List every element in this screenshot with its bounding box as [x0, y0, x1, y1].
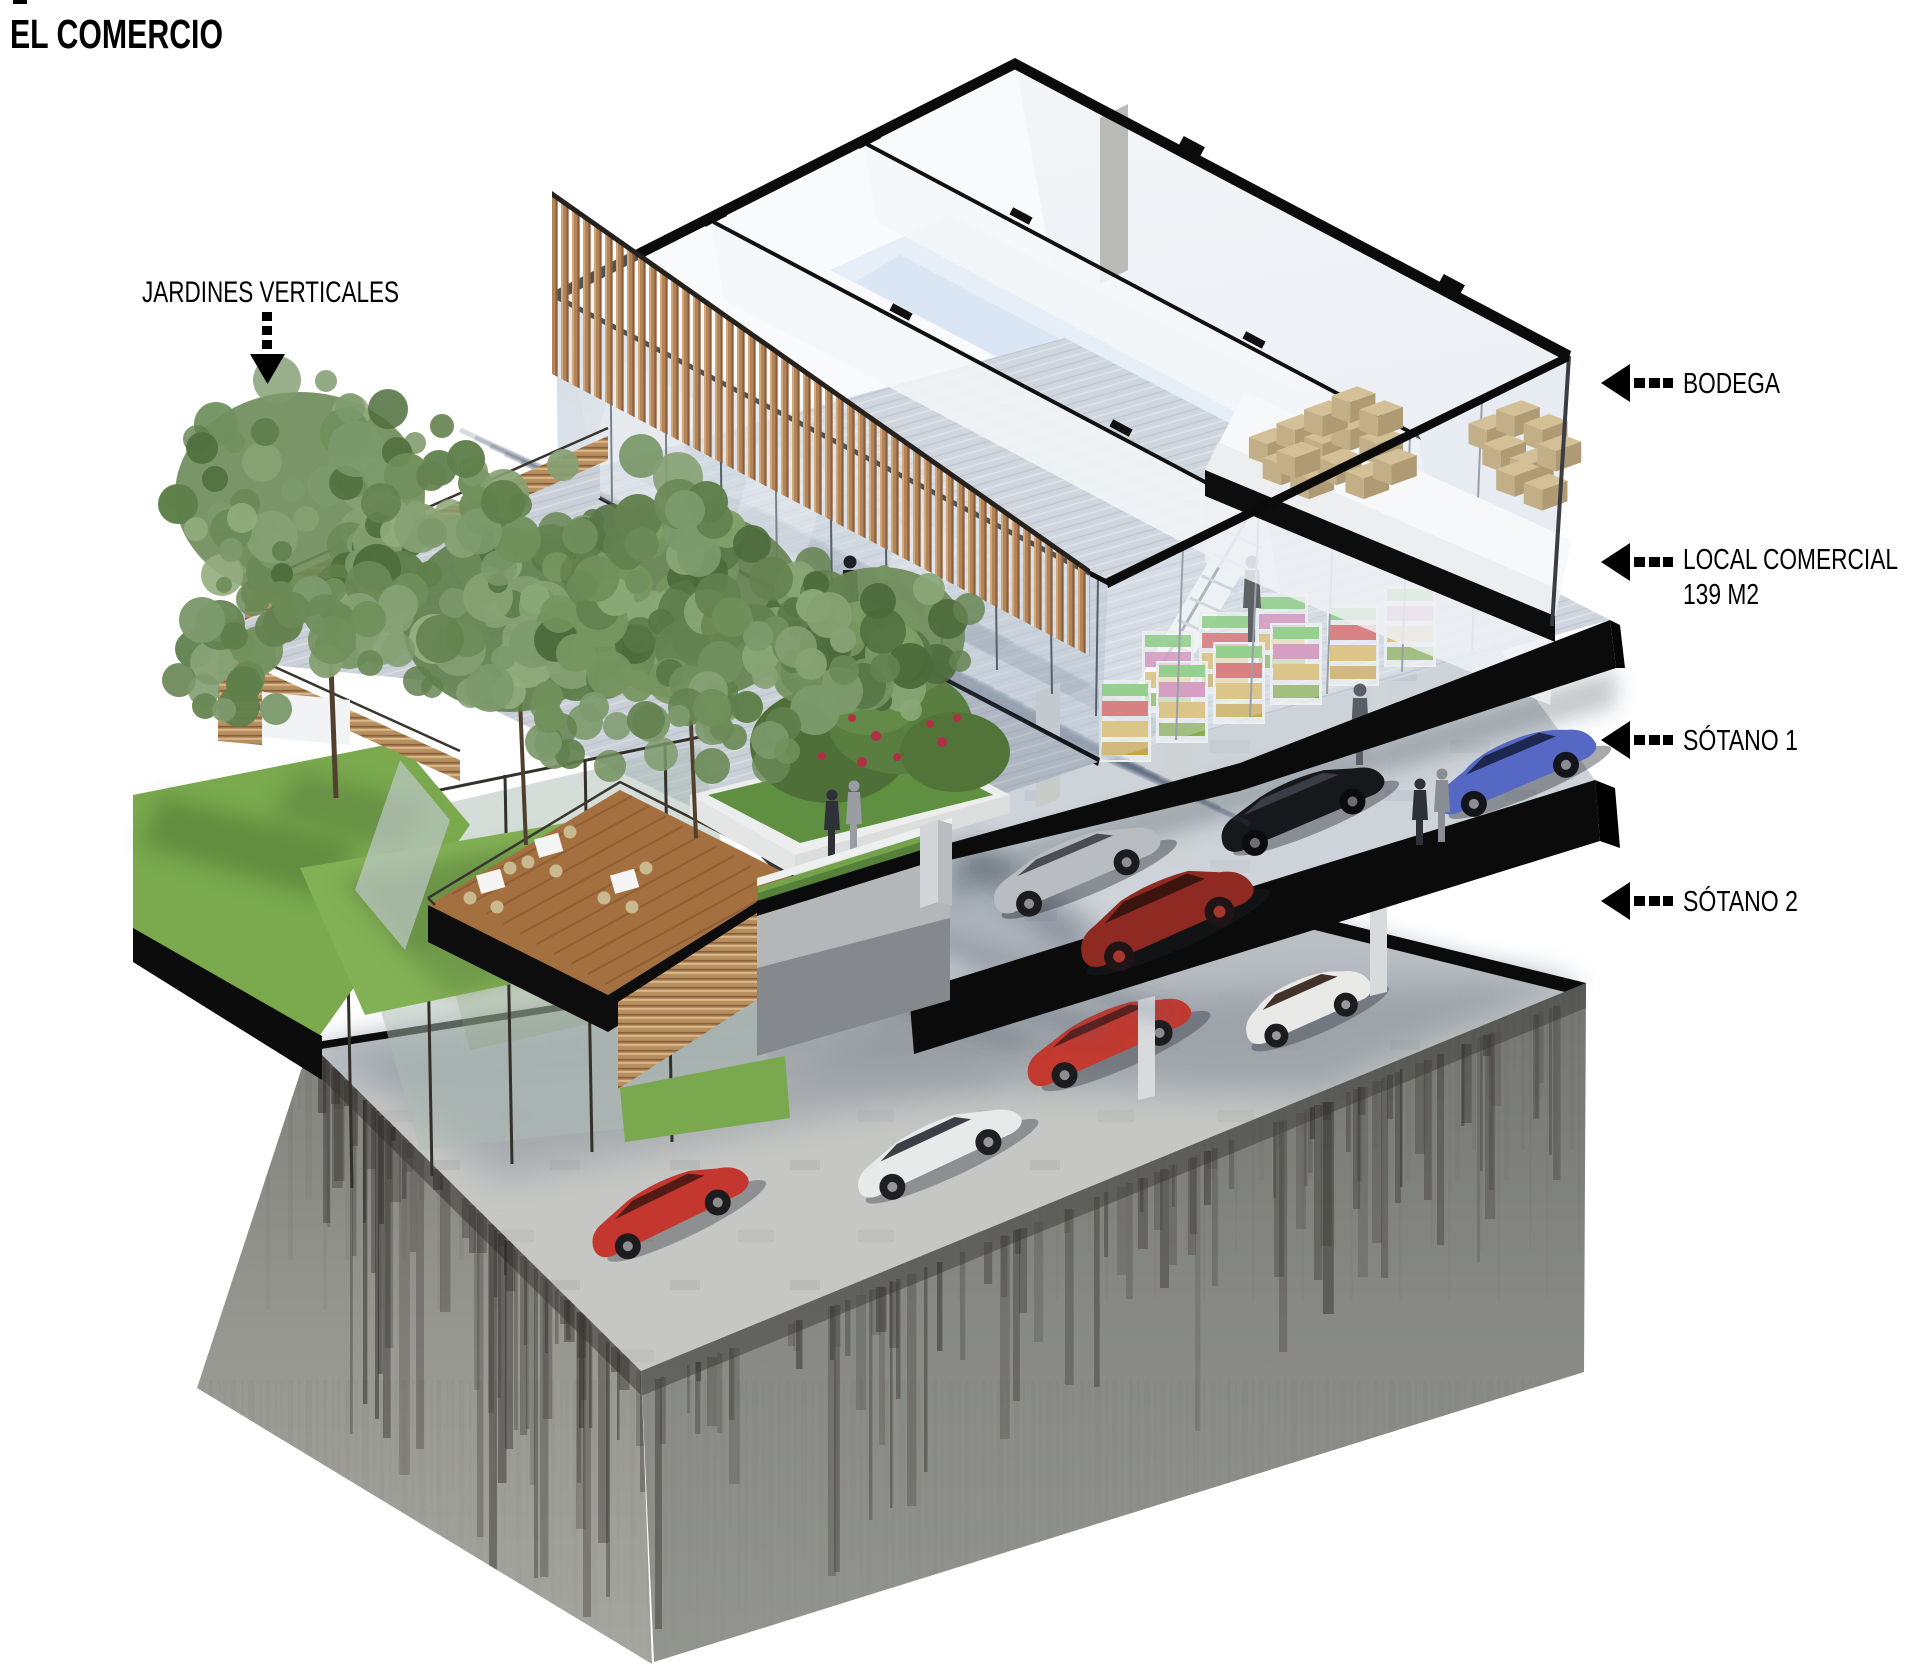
svg-text:SÓTANO 2: SÓTANO 2	[1683, 885, 1798, 918]
svg-text:139 M2: 139 M2	[1683, 579, 1759, 611]
svg-text:LOCAL COMERCIAL: LOCAL COMERCIAL	[1683, 544, 1898, 576]
svg-text:EL COMERCIO: EL COMERCIO	[10, 11, 223, 57]
svg-text:SÓTANO 1: SÓTANO 1	[1683, 724, 1798, 757]
svg-text:JARDINES VERTICALES: JARDINES VERTICALES	[142, 276, 399, 309]
svg-text:BODEGA: BODEGA	[1683, 368, 1781, 400]
